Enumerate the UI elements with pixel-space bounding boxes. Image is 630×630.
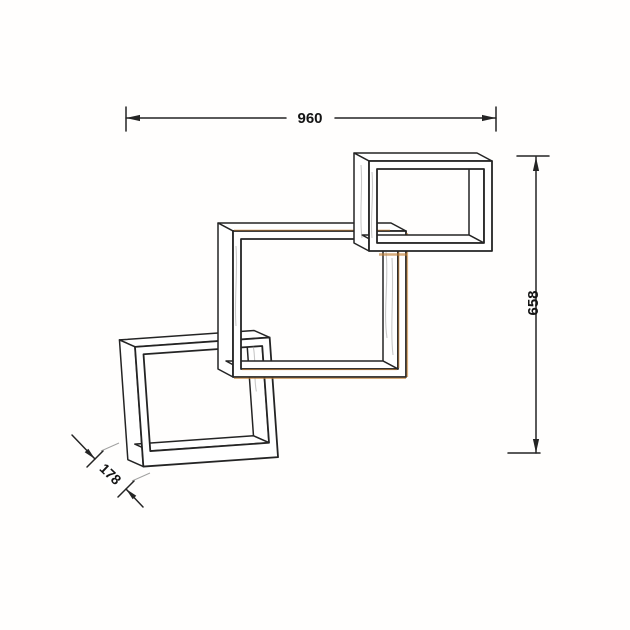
box-top-right [354,153,492,255]
depth-label-group: 178 [94,456,129,490]
height-arrow-top-icon [533,157,539,171]
width-arrow-left-icon [126,115,140,121]
box-bottom-left [119,329,278,467]
drawing-page: 960 658 178 [0,0,630,630]
box-middle-side-face [218,223,233,377]
depth-extension-line-lower [132,473,150,481]
dimension-height: 658 [508,156,549,453]
box-top-right-inner-right-face [469,161,484,243]
width-arrow-right-icon [482,115,496,121]
box-top-right-top-face [354,153,492,161]
box-middle-inner-bottom-face [226,361,398,369]
depth-extension-line-upper [101,443,119,451]
box-top-right-inner-bottom-face [362,235,484,243]
shelf-technical-drawing: 960 658 178 [0,0,630,630]
width-dimension-label: 960 [297,110,322,127]
height-dimension-label: 658 [525,290,542,315]
dimension-width: 960 [126,107,496,131]
height-arrow-bottom-icon [533,439,539,453]
